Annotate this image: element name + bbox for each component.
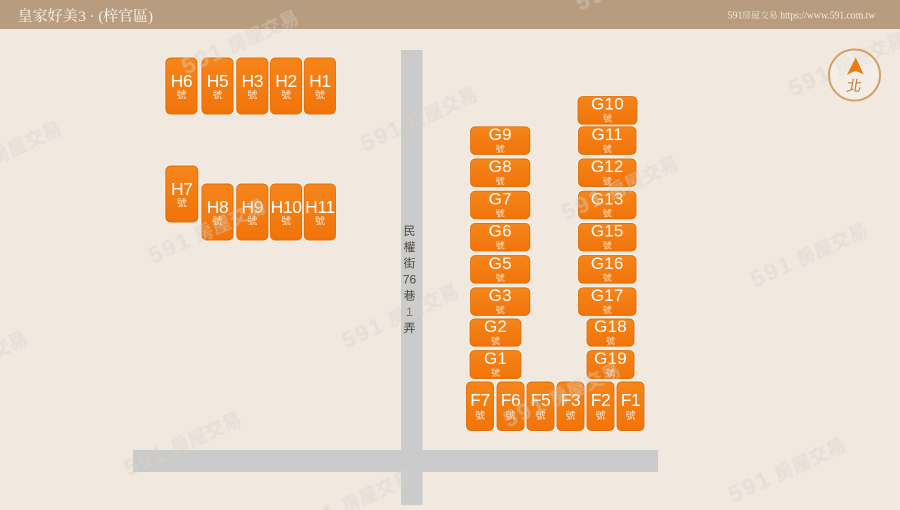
svg-text:G7: G7	[489, 189, 512, 208]
svg-text:G16: G16	[591, 254, 624, 273]
svg-text:H3: H3	[242, 71, 264, 91]
svg-text:G2: G2	[484, 317, 507, 336]
svg-text:H8: H8	[207, 197, 229, 217]
svg-text:G3: G3	[489, 286, 512, 305]
svg-text:G15: G15	[591, 222, 624, 241]
svg-text:F2: F2	[591, 390, 611, 410]
svg-text:G18: G18	[594, 317, 627, 336]
svg-text:G10: G10	[591, 95, 624, 114]
svg-text:G6: G6	[489, 222, 512, 241]
svg-text:G1: G1	[484, 349, 507, 368]
svg-text:H1: H1	[309, 71, 331, 91]
svg-text:H7: H7	[171, 179, 193, 199]
svg-text:3 · (: 3 · (	[78, 8, 103, 25]
svg-text:https://www.591.com.tw: https://www.591.com.tw	[780, 11, 876, 22]
svg-text:G17: G17	[591, 286, 624, 305]
svg-text:H10: H10	[271, 197, 303, 217]
svg-text:F1: F1	[621, 390, 641, 410]
svg-text:G12: G12	[591, 157, 624, 176]
svg-text:F7: F7	[470, 390, 490, 410]
svg-text:76: 76	[403, 273, 417, 287]
svg-text:G5: G5	[489, 254, 512, 273]
svg-text:G11: G11	[591, 125, 622, 144]
svg-text:H11: H11	[305, 197, 335, 217]
svg-text:G8: G8	[489, 157, 512, 176]
svg-text:G9: G9	[489, 125, 512, 144]
svg-text:): )	[148, 8, 153, 25]
svg-text:591: 591	[728, 11, 743, 22]
svg-text:H5: H5	[207, 71, 229, 91]
svg-text:H2: H2	[275, 71, 297, 91]
